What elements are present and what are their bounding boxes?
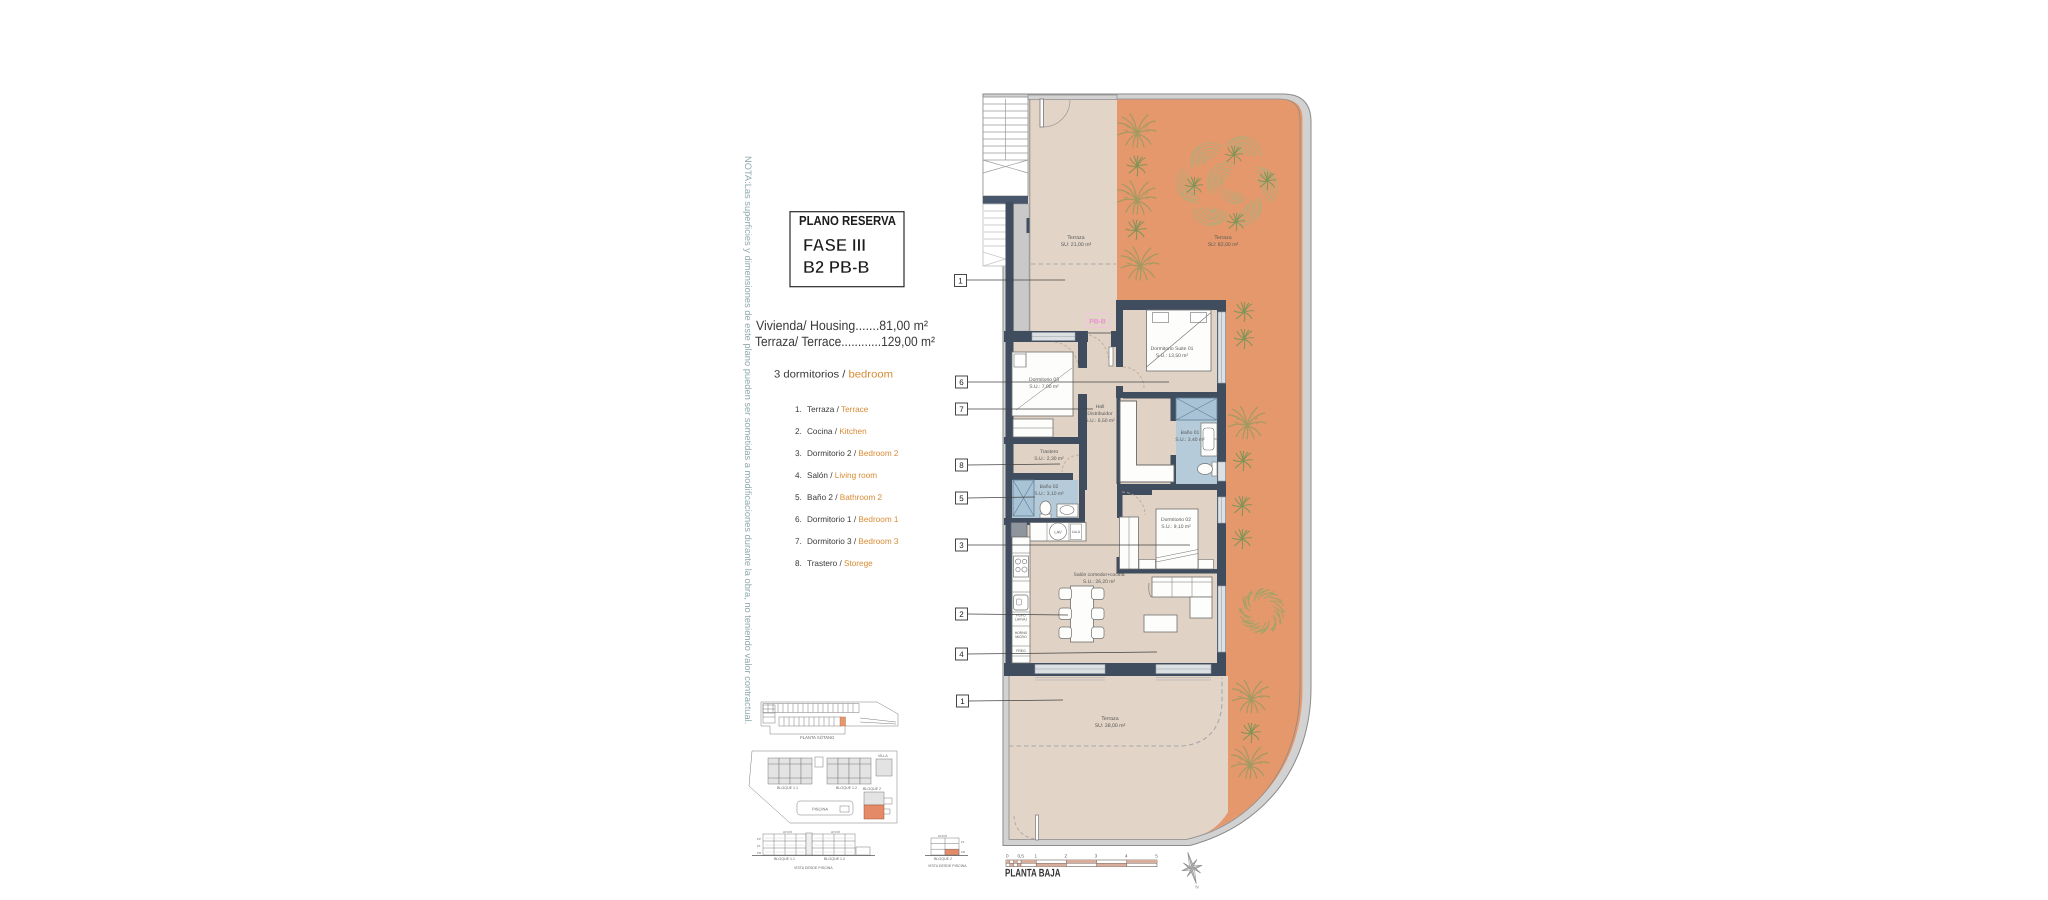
svg-text:Dormitorio 02: Dormitorio 02 (1161, 517, 1191, 523)
svg-text:2.: 2. (795, 427, 802, 436)
svg-text:Terraza: Terraza (1101, 716, 1118, 722)
svg-text:Terraza / Terrace: Terraza / Terrace (807, 405, 869, 414)
svg-text:Terraza: Terraza (1214, 235, 1231, 241)
svg-text:0: 0 (1006, 854, 1009, 859)
svg-text:BLOQUE 1.2: BLOQUE 1.2 (836, 786, 857, 790)
svg-text:Dormitorio 1 / Bedroom 1: Dormitorio 1 / Bedroom 1 (807, 515, 899, 524)
svg-text:5: 5 (1155, 854, 1158, 859)
svg-text:SU: 82,00 m²: SU: 82,00 m² (1208, 242, 1239, 248)
svg-text:NOTA:Las superficies y dimensi: NOTA:Las superficies y dimensiones de es… (743, 156, 753, 724)
svg-text:Cocina / Kitchen: Cocina / Kitchen (807, 427, 867, 436)
svg-text:PB: PB (757, 851, 761, 855)
svg-text:PB: PB (961, 850, 965, 854)
svg-text:7.: 7. (795, 537, 802, 546)
svg-text:1: 1 (1035, 854, 1038, 859)
svg-text:Baño 01: Baño 01 (1181, 430, 1200, 436)
svg-text:PISCINA: PISCINA (812, 807, 828, 812)
svg-text:8: 8 (959, 461, 964, 470)
svg-text:S.U.: 26,20 m²: S.U.: 26,20 m² (1083, 579, 1116, 585)
svg-text:SU: 38,00 m²: SU: 38,00 m² (1095, 723, 1126, 729)
svg-text:S.U.: 3,40 m²: S.U.: 3,40 m² (1175, 437, 1205, 443)
svg-text:0,5: 0,5 (1018, 854, 1025, 859)
svg-text:3.: 3. (795, 449, 802, 458)
svg-text:BLOQUE 1.1: BLOQUE 1.1 (777, 786, 798, 790)
svg-text:2: 2 (1065, 854, 1068, 859)
svg-text:FASE III: FASE III (803, 235, 866, 255)
svg-text:8.: 8. (795, 559, 802, 568)
svg-text:PLANO RESERVA: PLANO RESERVA (799, 213, 897, 228)
svg-text:VILLA: VILLA (878, 754, 888, 758)
svg-text:PLANTA BAJA: PLANTA BAJA (1005, 868, 1061, 880)
svg-text:2: 2 (959, 610, 964, 619)
svg-text:Salón / Living room: Salón / Living room (807, 471, 877, 480)
svg-text:1: 1 (960, 697, 965, 706)
svg-text:S.U.: 3,10 m²: S.U.: 3,10 m² (1034, 491, 1064, 497)
svg-text:Distribuidor: Distribuidor (1087, 411, 1113, 417)
svg-text:S.U.: 6,50 m²: S.U.: 6,50 m² (1085, 418, 1115, 424)
svg-text:Terraza/ Terrace............12: Terraza/ Terrace............129,00 m² (755, 334, 935, 349)
svg-text:Salón comedor+cocina: Salón comedor+cocina (1073, 572, 1124, 578)
svg-text:Dormitorio 2 / Bedroom 2: Dormitorio 2 / Bedroom 2 (807, 449, 899, 458)
svg-text:ATICO: ATICO (938, 834, 948, 838)
svg-text:S.U.: 7,00 m²: S.U.: 7,00 m² (1029, 384, 1059, 390)
svg-text:6: 6 (959, 378, 964, 387)
svg-text:SU: 21,00 m²: SU: 21,00 m² (1061, 242, 1092, 248)
svg-text:S.U.: 13,50 m²: S.U.: 13,50 m² (1156, 353, 1189, 359)
svg-text:BLOQUE 2: BLOQUE 2 (934, 857, 952, 861)
svg-text:FREG: FREG (1016, 649, 1026, 653)
svg-text:S.U.: 2,30 m²: S.U.: 2,30 m² (1034, 456, 1064, 462)
svg-text:LAVVAJ: LAVVAJ (1015, 618, 1027, 622)
svg-text:P2: P2 (757, 837, 761, 841)
svg-text:Terraza: Terraza (1067, 235, 1084, 241)
svg-text:4: 4 (959, 650, 964, 659)
svg-text:LAV: LAV (1054, 530, 1062, 535)
svg-text:BLOQUE 1.2: BLOQUE 1.2 (824, 857, 845, 861)
svg-text:Trastero / Storege: Trastero / Storege (807, 559, 873, 568)
svg-text:BLOQUE 2: BLOQUE 2 (863, 787, 881, 791)
svg-text:Vivienda/ Housing.......81,00: Vivienda/ Housing.......81,00 m² (756, 318, 928, 333)
svg-text:ATICO: ATICO (831, 830, 841, 834)
svg-text:N: N (1195, 884, 1198, 889)
svg-text:CALD: CALD (1072, 530, 1081, 534)
svg-text:1: 1 (958, 277, 963, 286)
svg-text:6.: 6. (795, 515, 802, 524)
svg-text:Dormitorio 3 / Bedroom 3: Dormitorio 3 / Bedroom 3 (807, 537, 899, 546)
svg-text:7: 7 (959, 405, 964, 414)
svg-text:Hall: Hall (1096, 404, 1105, 410)
svg-text:B2 PB-B: B2 PB-B (803, 257, 870, 277)
svg-text:3 dormitorios / bedroom: 3 dormitorios / bedroom (774, 369, 893, 381)
svg-text:PB-B: PB-B (1089, 319, 1106, 326)
svg-text:P1: P1 (961, 840, 965, 844)
svg-text:3: 3 (959, 541, 964, 550)
svg-text:5: 5 (959, 494, 964, 503)
svg-text:Dormitorio Suite 01: Dormitorio Suite 01 (1151, 346, 1194, 352)
svg-text:S.U.: 9,10 m²: S.U.: 9,10 m² (1161, 524, 1191, 530)
svg-text:VISTA DESDE PISCINA: VISTA DESDE PISCINA (794, 866, 833, 870)
svg-text:Baño 2 / Bathroom 2: Baño 2 / Bathroom 2 (807, 493, 883, 502)
svg-text:P1: P1 (757, 844, 761, 848)
svg-text:3: 3 (1095, 854, 1098, 859)
svg-text:4: 4 (1125, 854, 1128, 859)
svg-text:VISTA DESDE PISCINA: VISTA DESDE PISCINA (928, 864, 967, 868)
svg-text:5.: 5. (795, 493, 802, 502)
svg-text:1.: 1. (795, 405, 802, 414)
svg-text:4.: 4. (795, 471, 802, 480)
svg-text:ATICO: ATICO (783, 830, 793, 834)
svg-text:Baño 02: Baño 02 (1040, 484, 1059, 490)
svg-text:PLANTA SÓTANO: PLANTA SÓTANO (800, 735, 835, 740)
svg-text:MICRO: MICRO (1015, 635, 1027, 639)
svg-text:BLOQUE 1.1: BLOQUE 1.1 (774, 857, 795, 861)
svg-text:Trastero: Trastero (1040, 449, 1059, 455)
